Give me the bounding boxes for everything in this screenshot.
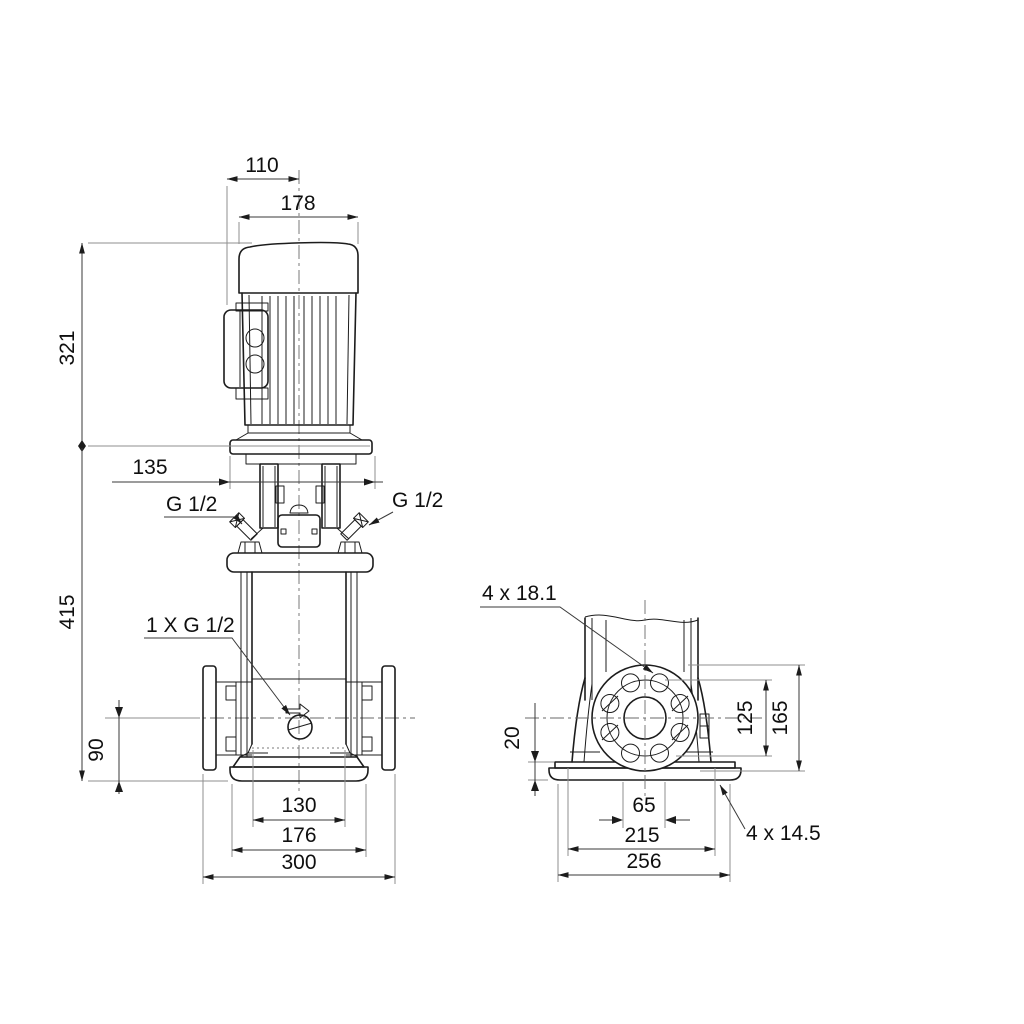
cable-gland-bottom [246,355,264,373]
dim-135: 135 [132,456,167,479]
label-vent-left: G 1/2 [166,493,217,516]
dim-415: 415 [56,594,79,629]
vent-plug-right [339,513,368,542]
motor-stool-inner-flange [246,454,356,464]
dim-20: 20 [501,726,524,749]
pump-dimensional-drawing: 110 178 321 415 135 [0,0,1024,1024]
dim-178: 178 [280,192,315,215]
stool-bolt-left [238,542,262,553]
dim-256: 256 [626,850,661,873]
dim-176: 176 [281,824,316,847]
dim-130: 130 [281,794,316,817]
motor-fan-cover [239,243,358,293]
front-view: 110 178 321 415 135 [56,154,443,884]
label-vent-right: G 1/2 [392,489,443,512]
motor-terminal-box [224,303,268,399]
pump-head-plate [227,553,373,572]
front-dimensions: 110 178 321 415 135 [56,154,443,884]
label-flange-holes: 4 x 18.1 [482,582,557,605]
label-base-holes: 4 x 14.5 [746,822,821,845]
dim-125: 125 [734,700,757,735]
cable-gland-top [246,329,264,347]
coupling-guard-posts [251,464,349,539]
dim-165: 165 [769,700,792,735]
label-drain: 1 X G 1/2 [146,614,235,637]
dim-215: 215 [624,824,659,847]
dim-110: 110 [245,154,278,177]
dim-300: 300 [281,851,316,874]
dim-321: 321 [56,330,79,365]
stool-bolt-right [338,542,362,553]
dim-90: 90 [85,738,108,761]
side-view: 4 x 18.1 20 125 165 65 [480,582,821,882]
break-line [585,615,698,622]
dim-65: 65 [632,794,655,817]
motor-stool-top-flange [230,440,372,454]
page: 110 178 321 415 135 [0,0,1024,1024]
